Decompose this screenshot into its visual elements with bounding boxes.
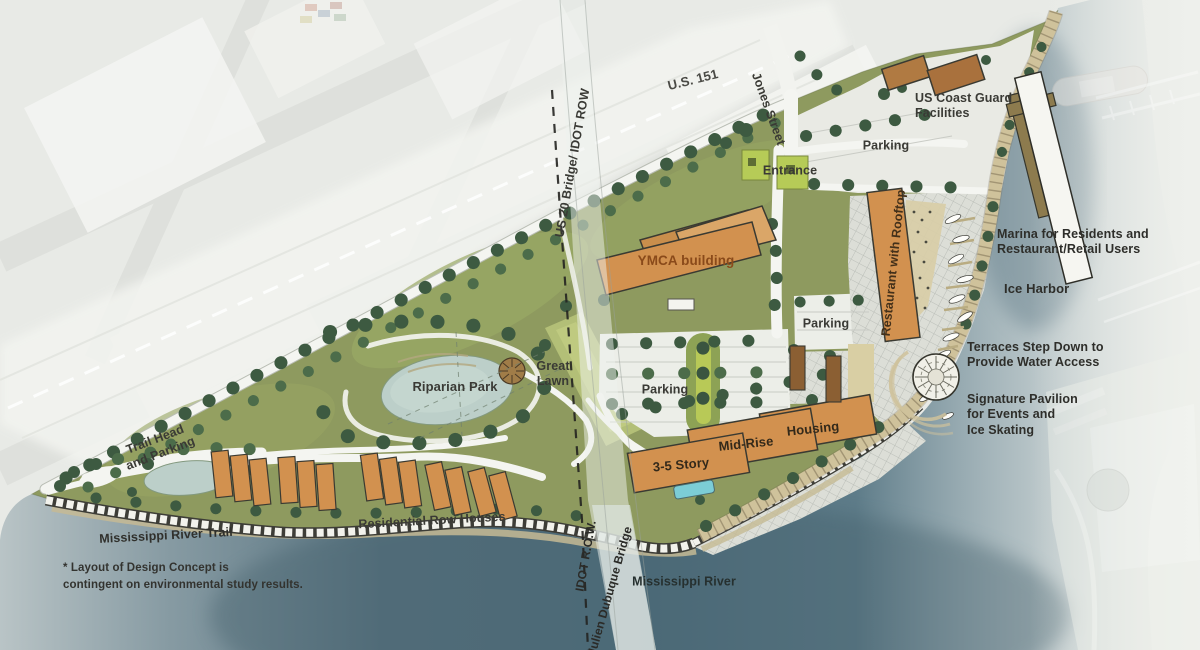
ymca-entry-canopy: [668, 299, 694, 310]
trellis-structure-1: [790, 346, 805, 390]
site-plan-drawing: [0, 0, 1200, 650]
trellis-structure-2: [826, 356, 841, 402]
riverfront-master-plan-map: U.S. 151 Jones Street US 20 Bridge/ IDOT…: [0, 0, 1200, 650]
riparian-overlook: [499, 358, 525, 384]
